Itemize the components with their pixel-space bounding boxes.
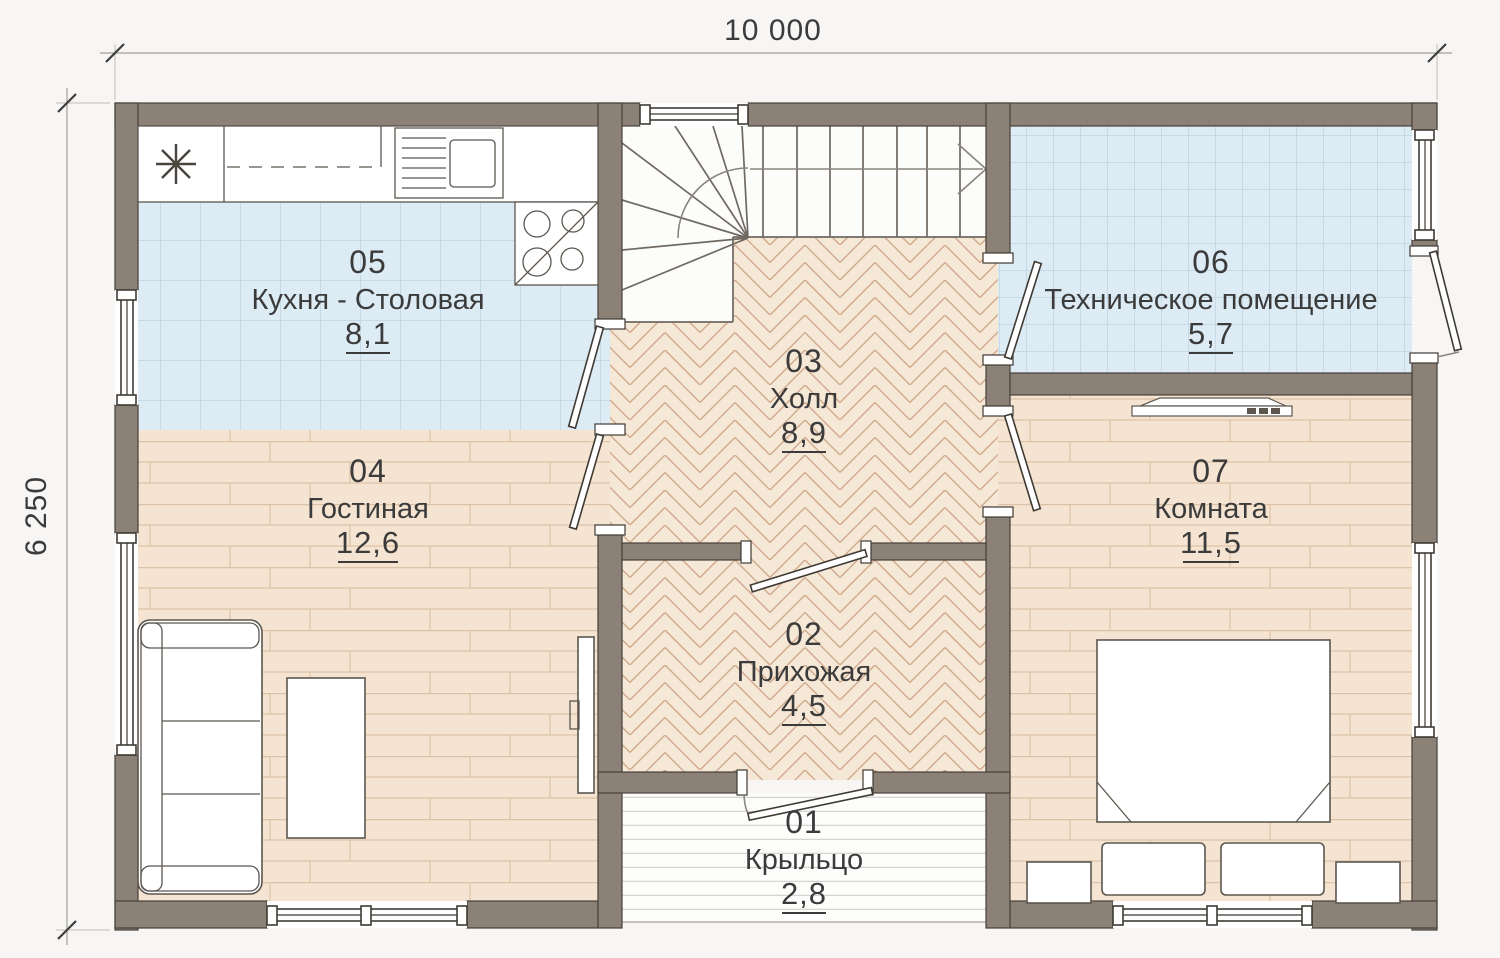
room-name: Кухня - Столовая <box>251 284 484 316</box>
pillow-left <box>1102 843 1205 895</box>
sofa <box>138 620 262 894</box>
room-number: 06 <box>1192 244 1230 280</box>
window-right-tech <box>1412 130 1437 240</box>
room-name: Гостиная <box>307 493 429 525</box>
room-name: Крыльцо <box>745 844 863 876</box>
room-number: 02 <box>785 616 823 652</box>
window-bottom-living <box>267 901 467 928</box>
wall-segment <box>115 901 267 928</box>
room-number: 04 <box>349 453 387 489</box>
wall-segment <box>986 510 1010 928</box>
kitchen-counter <box>138 126 598 202</box>
floor-plan: 10 000 6 250 05 Кухня - Столовая 8,1 06 … <box>0 0 1500 958</box>
room-area: 4,5 <box>781 688 827 723</box>
room-area: 12,6 <box>336 525 400 560</box>
wall-segment <box>598 103 622 327</box>
nightstand-right <box>1336 862 1400 903</box>
room-area: 11,5 <box>1180 525 1242 560</box>
window-bottom-bedroom <box>1113 901 1312 928</box>
wall-segment <box>986 103 1010 262</box>
floor-plan-canvas: 10 000 6 250 05 Кухня - Столовая 8,1 06 … <box>0 0 1500 958</box>
room-number: 03 <box>785 343 823 379</box>
room-number: 07 <box>1192 453 1230 489</box>
pillow-right <box>1221 843 1324 895</box>
wall-segment <box>622 543 747 560</box>
stove <box>515 202 598 285</box>
room-name: Комната <box>1154 493 1268 525</box>
appliance-asterisk-icon <box>156 144 196 184</box>
nightstand-left <box>1027 862 1091 903</box>
room-name: Холл <box>770 383 838 415</box>
room-area: 8,9 <box>781 415 827 450</box>
wall-segment <box>1010 901 1113 928</box>
window-right-bedroom <box>1412 543 1437 737</box>
wall-segment <box>115 405 138 533</box>
wall-segment <box>115 103 640 126</box>
wall-segment <box>868 772 1010 793</box>
wall-segment <box>748 103 1437 126</box>
room-number: 01 <box>785 804 823 840</box>
room-area: 5,7 <box>1188 316 1234 351</box>
wall-segment <box>598 772 742 793</box>
window-left-kitchen <box>115 290 138 405</box>
wall-segment <box>467 901 598 928</box>
coffee-table <box>287 678 365 838</box>
wall-segment <box>598 528 622 928</box>
room-number: 05 <box>349 244 387 280</box>
window-left-living <box>115 533 138 755</box>
room-name: Прихожая <box>737 656 871 688</box>
wall-segment <box>115 103 138 290</box>
dimension-width-label: 10 000 <box>724 14 822 47</box>
room-area: 2,8 <box>781 876 827 911</box>
room-name: Техническое помещение <box>1044 284 1377 316</box>
wall-segment <box>1412 357 1437 543</box>
wall-segment <box>1312 901 1437 928</box>
window-top-stairs <box>640 103 748 126</box>
wall-segment <box>1412 103 1437 130</box>
room-area: 8,1 <box>345 316 391 351</box>
radiator <box>1132 398 1292 416</box>
wall-segment <box>863 543 986 560</box>
dimension-depth-label: 6 250 <box>20 476 53 556</box>
wall-segment <box>1010 373 1412 395</box>
